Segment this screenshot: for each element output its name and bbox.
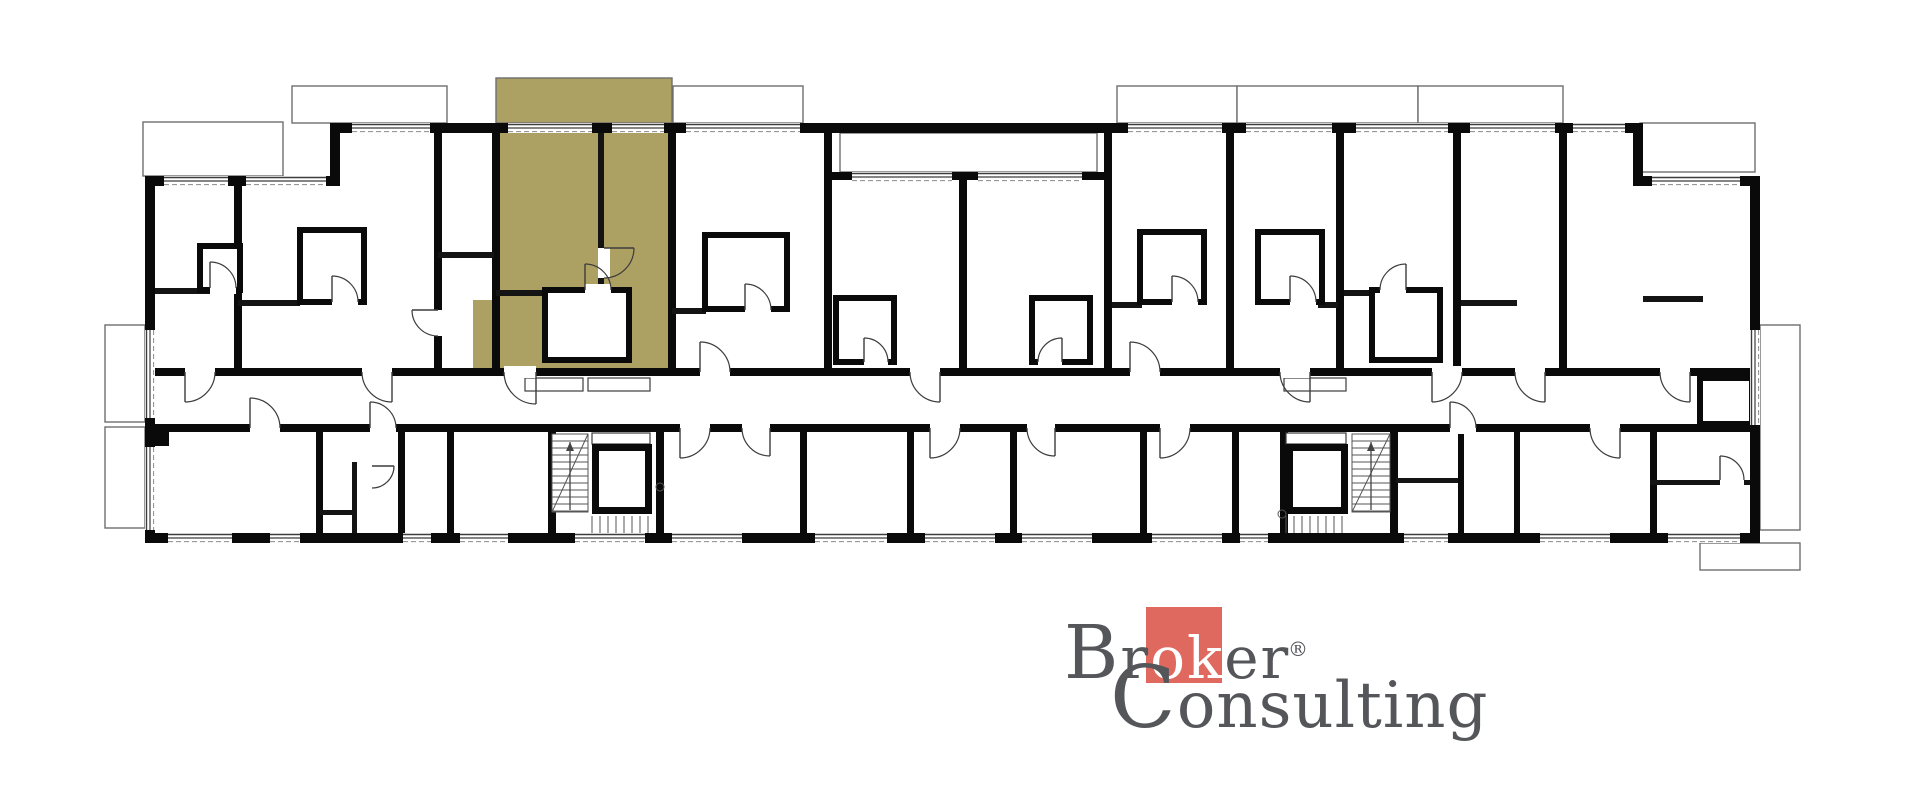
small-room-box (1372, 290, 1440, 360)
door-gap (680, 422, 710, 434)
small-room-box (836, 298, 894, 362)
shaft-vent-box (592, 433, 650, 444)
shaft-vent-box (525, 378, 583, 391)
door-gap (1432, 366, 1462, 378)
door-gap (504, 366, 536, 378)
partition-wall (1461, 300, 1517, 306)
door-gap (1038, 356, 1062, 368)
balcony-outline (1237, 86, 1418, 123)
door-gap (362, 366, 392, 378)
wall-segment (447, 432, 454, 533)
door-gap (366, 466, 378, 488)
wall-segment (668, 133, 676, 368)
wall-segment (959, 180, 967, 368)
shaft-vent-box (1286, 433, 1346, 444)
door-gap (1720, 474, 1744, 486)
partition-wall (672, 308, 706, 314)
wall-segment (398, 432, 405, 533)
registered-trademark-symbol: ® (1288, 637, 1308, 661)
logo-letters-onsulting: onsulting (1177, 669, 1489, 743)
wall-segment (155, 432, 169, 446)
door-gap (185, 366, 215, 378)
balcony-outline (143, 122, 283, 176)
partition-wall (1396, 478, 1458, 483)
wall-segment (492, 133, 500, 368)
small-room-box (545, 290, 629, 360)
balcony-outline (1418, 86, 1563, 123)
small-room-box (1700, 378, 1752, 424)
highlighted-unit-area[interactable] (496, 78, 672, 123)
door-gap (1130, 366, 1160, 378)
door-gap (1160, 422, 1190, 434)
shaft-vent-box (1284, 378, 1346, 391)
partition-wall (438, 252, 494, 258)
door-gap (910, 366, 940, 378)
wall-segment (1514, 432, 1520, 533)
logo-letter-C: C (1110, 648, 1177, 748)
logo-word-consulting: Consulting (1110, 674, 1488, 738)
balcony-outline (1640, 123, 1755, 172)
door-gap (1515, 366, 1545, 378)
door-gap (1660, 366, 1690, 378)
wall-segment (1104, 133, 1112, 368)
door-gap (585, 284, 611, 296)
wall-segment (800, 432, 807, 533)
balcony-outline (105, 325, 145, 422)
door-gap (930, 422, 960, 434)
wall-segment (907, 432, 914, 533)
small-room-box (1032, 298, 1090, 362)
wall-segment (656, 428, 664, 533)
wall-segment (1140, 432, 1147, 533)
door-gap (250, 422, 280, 434)
wall-segment (1458, 432, 1464, 533)
door-gap (598, 248, 610, 278)
door-gap (1290, 296, 1316, 308)
door-gap (745, 304, 771, 316)
door-gap (370, 422, 396, 434)
wall-segment (824, 133, 832, 368)
door-gap (332, 296, 358, 308)
door-gap (432, 310, 444, 336)
balcony-outline (673, 86, 803, 123)
balcony-outline (1760, 325, 1800, 530)
balcony-outline (1117, 86, 1237, 123)
balcony-outline (105, 427, 145, 528)
floor-plan-svg (0, 0, 1920, 791)
shaft-vent-box (588, 378, 650, 391)
partition-wall (238, 300, 300, 306)
wall-segment (1232, 432, 1239, 533)
door-gap (1172, 296, 1198, 308)
balcony-outline (292, 86, 447, 123)
door-gap (1027, 422, 1055, 434)
door-gap (1590, 422, 1620, 434)
wall-segment (1453, 133, 1461, 368)
partition-wall (1643, 296, 1703, 302)
partition-wall (352, 462, 357, 533)
small-room-box (705, 235, 787, 309)
wall-segment (1226, 133, 1234, 368)
partition-wall (496, 290, 546, 296)
door-gap (1380, 284, 1406, 296)
wall-segment (1336, 133, 1344, 368)
partition-wall (320, 510, 357, 515)
door-gap (742, 422, 770, 434)
floorplan-page: Broker ® Consulting (0, 0, 1920, 791)
door-gap (1450, 422, 1476, 434)
balcony-outline (1700, 543, 1800, 570)
door-gap (864, 356, 888, 368)
wall-segment (1559, 133, 1567, 368)
elevator-cab (1293, 451, 1341, 507)
broker-consulting-logo: Broker ® Consulting (1040, 598, 1520, 791)
wall-segment (316, 432, 323, 533)
wall-segment (155, 368, 1750, 376)
door-gap (1280, 366, 1310, 378)
elevator-cab (599, 451, 645, 507)
balcony-outline (840, 133, 1097, 172)
door-gap (210, 282, 236, 294)
door-gap (700, 366, 730, 378)
wall-segment (1010, 432, 1017, 533)
